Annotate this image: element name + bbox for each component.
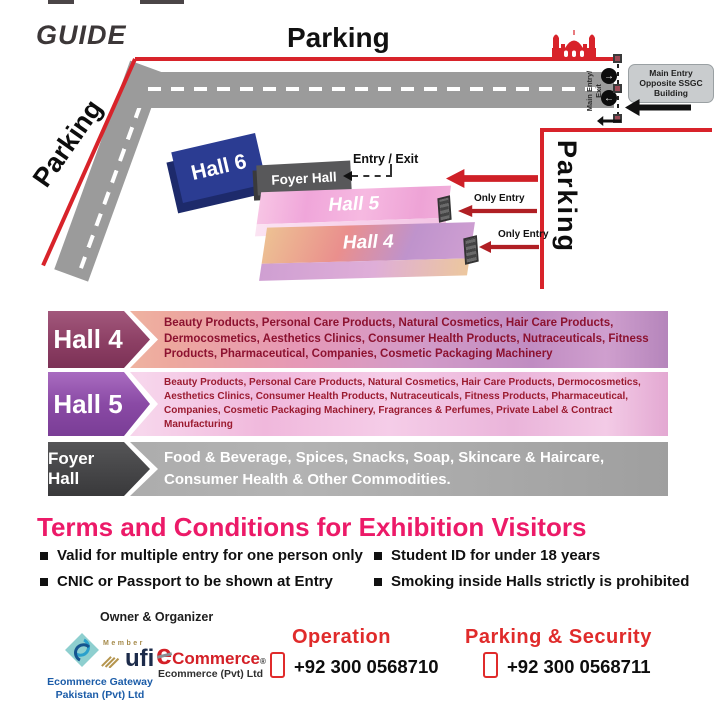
main-entry-callout: Main Entry Opposite SSGC Building [628, 64, 714, 103]
hall4-block: Hall 4 [259, 222, 475, 281]
ecommerce-gateway-caption: Ecommerce Gateway Pakistan (Pvt) Ltd [34, 676, 166, 701]
term-item: Smoking inside Halls strictly is prohibi… [374, 573, 689, 590]
foyer-legend-row: Food & Beverage, Spices, Snacks, Soap, S… [48, 442, 668, 496]
main-red-arrow [446, 169, 538, 188]
hall6-label: Hall 6 [189, 150, 249, 186]
foyer-description: Food & Beverage, Spices, Snacks, Soap, S… [164, 447, 654, 492]
entry-exit-dashed-path [390, 164, 392, 176]
term-item: CNIC or Passport to be shown at Entry [40, 573, 333, 590]
hall5-entry-ramp [437, 195, 451, 222]
only-entry-arrow-1 [458, 205, 537, 217]
exhibition-guide-poster: GUIDE Parking Parking Parking [0, 0, 715, 707]
entry-exit-arrowhead [343, 171, 352, 181]
terms-title: Terms and Conditions for Exhibition Visi… [37, 512, 586, 543]
term-item: Student ID for under 18 years [374, 547, 600, 564]
hall5-legend-row: Beauty Products, Personal Care Products,… [48, 372, 668, 436]
bullet-square-icon [40, 552, 48, 560]
entry-exit-label: Entry / Exit [353, 152, 418, 166]
cropped-artifact [48, 0, 74, 4]
entry-direction-arrow [625, 99, 691, 116]
term-text: Student ID for under 18 years [391, 547, 600, 564]
term-text: CNIC or Passport to be shown at Entry [57, 573, 333, 590]
red-boundary-right-top [540, 128, 712, 132]
ecommerce-logo-name: Commerce [172, 649, 260, 669]
guide-title: GUIDE [36, 20, 127, 51]
parking-security-label: Parking & Security [465, 626, 652, 649]
circle-arrow-right-icon: → [601, 68, 617, 84]
parking-label-right: Parking [551, 140, 582, 253]
hall6-block: Hall 6 [171, 133, 266, 203]
hall4-label: Hall 4 [341, 231, 395, 254]
only-entry-label-1: Only Entry [474, 193, 525, 204]
registered-mark: ® [260, 657, 266, 666]
bullet-square-icon [374, 552, 382, 560]
term-item: Valid for multiple entry for one person … [40, 547, 363, 564]
parking-security-phone: +92 300 0568711 [507, 656, 651, 678]
gate-post [613, 54, 622, 63]
term-text: Valid for multiple entry for one person … [57, 547, 363, 564]
operation-phone: +92 300 0568710 [294, 656, 439, 678]
ufi-wings-icon [100, 653, 124, 668]
bullet-square-icon [40, 578, 48, 586]
foyer-legend-text: Foyer Hall [48, 449, 128, 489]
arrow-glyph: → [604, 71, 614, 82]
entry-exit-dashed-path [352, 175, 392, 177]
hall5-description: Beauty Products, Personal Care Products,… [164, 376, 654, 432]
phone-icon [270, 652, 285, 678]
arrow-glyph: ← [604, 93, 614, 104]
hall4-legend-row: Beauty Products, Personal Care Products,… [48, 311, 668, 368]
hall4-legend-text: Hall 4 [53, 324, 122, 355]
ecommerce-caption: Ecommerce (Pvt) Ltd [158, 668, 263, 680]
cropped-artifact [140, 0, 184, 4]
foyer-label: Foyer Hall [271, 169, 337, 187]
operation-label: Operation [292, 626, 391, 649]
only-entry-label-2: Only Entry [498, 229, 549, 240]
term-text: Smoking inside Halls strictly is prohibi… [391, 573, 689, 590]
ecommerce-gateway-logo [60, 628, 104, 672]
ufi-logo-text: ufi [125, 645, 154, 673]
landmark-building-icon [551, 26, 597, 58]
parking-label-top: Parking [287, 22, 390, 54]
red-boundary-right [540, 128, 544, 289]
phone-icon [483, 652, 498, 678]
hall5-legend-text: Hall 5 [53, 389, 122, 420]
owner-organizer-label: Owner & Organizer [100, 610, 213, 624]
hall5-label: Hall 5 [327, 193, 381, 217]
hall4-description: Beauty Products, Personal Care Products,… [164, 316, 654, 363]
ecommerce-logo: e Commerce ® [156, 643, 266, 669]
only-entry-arrow-2 [479, 241, 539, 253]
gate-post [613, 84, 622, 93]
small-direction-arrow [597, 116, 621, 126]
ecommerce-logo-e: e [156, 643, 172, 668]
hall4-entry-ramp [463, 235, 478, 265]
bullet-square-icon [374, 578, 382, 586]
road-dashes [148, 87, 600, 91]
red-boundary-top [135, 57, 613, 61]
